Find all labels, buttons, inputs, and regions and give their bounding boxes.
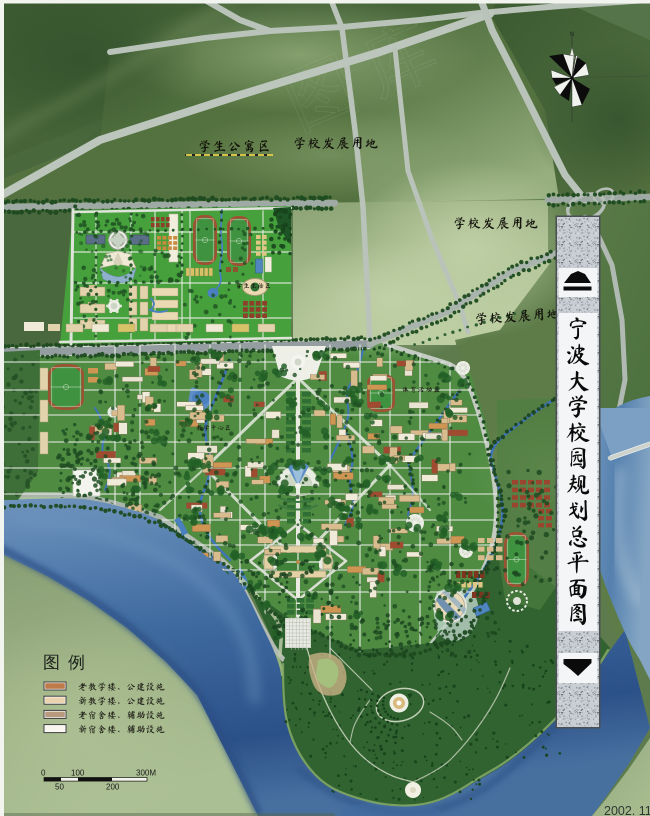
svg-text:2002. 11: 2002. 11	[604, 804, 650, 816]
svg-text:N: N	[570, 31, 575, 38]
svg-text:300M: 300M	[136, 769, 156, 778]
svg-text:100: 100	[71, 769, 85, 778]
svg-text:200: 200	[106, 783, 120, 792]
svg-text:0: 0	[41, 769, 46, 778]
svg-text:50: 50	[55, 783, 64, 792]
